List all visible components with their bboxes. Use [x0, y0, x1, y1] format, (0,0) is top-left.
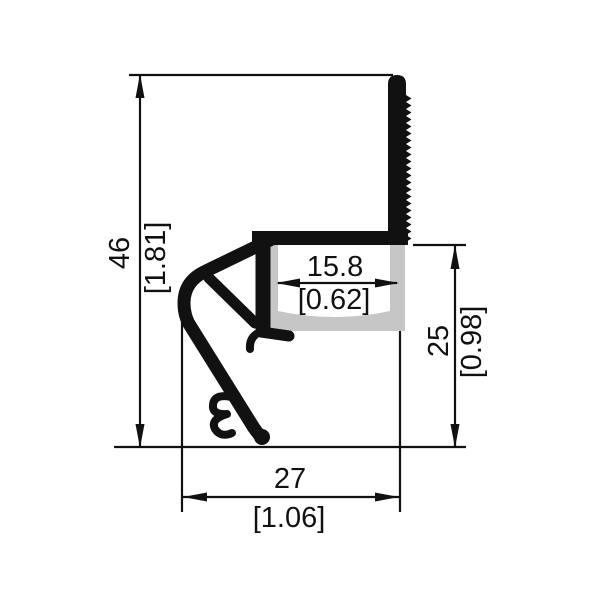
dim-bottom-width-metric: 27 — [274, 463, 306, 495]
leg-tip — [254, 429, 270, 445]
dimension-bottom-width: 27 [1.06] — [182, 463, 400, 534]
profile-drawing-svg: 46 [1.81] 15.8 [0.62] 25 [0.98] 27 [1.06… — [0, 0, 600, 600]
arrow-down-icon — [136, 424, 145, 448]
dimension-right-height: 25 [0.98] — [423, 245, 488, 448]
dim-right-height-metric: 25 — [423, 325, 455, 357]
arrow-right-icon — [375, 493, 399, 502]
dim-inner-width-imperial: [0.62] — [298, 284, 371, 316]
profile-foot-tail — [250, 332, 260, 349]
flange-serration-icon — [406, 95, 412, 242]
arrow-up-icon — [136, 74, 145, 98]
dim-right-height-imperial: [0.98] — [456, 306, 488, 379]
dim-overall-height-metric: 46 — [104, 237, 136, 269]
dim-bottom-width-imperial: [1.06] — [253, 502, 326, 534]
serrated-flange — [388, 75, 406, 245]
dim-inner-width-metric: 15.8 — [307, 251, 363, 283]
dimension-overall-height: 46 [1.81] — [104, 74, 172, 448]
profile-foot — [261, 332, 289, 336]
arrow-left-icon — [183, 493, 207, 502]
profile-strut — [209, 278, 255, 323]
technical-drawing-canvas: 46 [1.81] 15.8 [0.62] 25 [0.98] 27 [1.06… — [0, 0, 600, 600]
arrow-down-icon — [451, 424, 460, 448]
arrow-up-icon — [451, 245, 460, 269]
dim-overall-height-imperial: [1.81] — [140, 222, 172, 295]
